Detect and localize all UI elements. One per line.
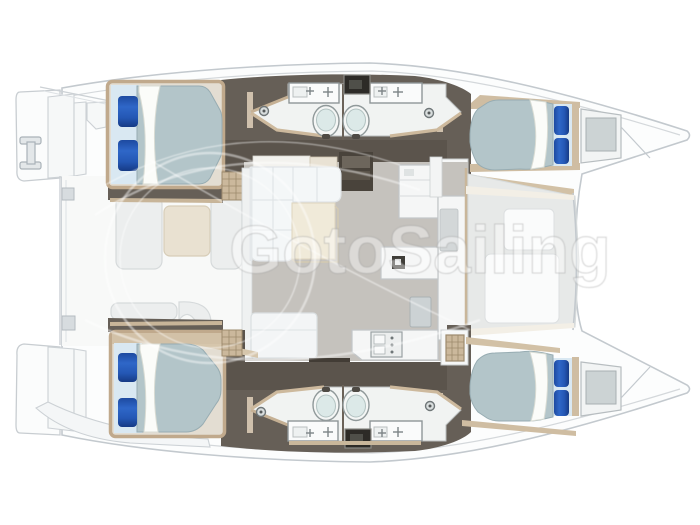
- svg-text:GotoSailing: GotoSailing: [229, 212, 611, 288]
